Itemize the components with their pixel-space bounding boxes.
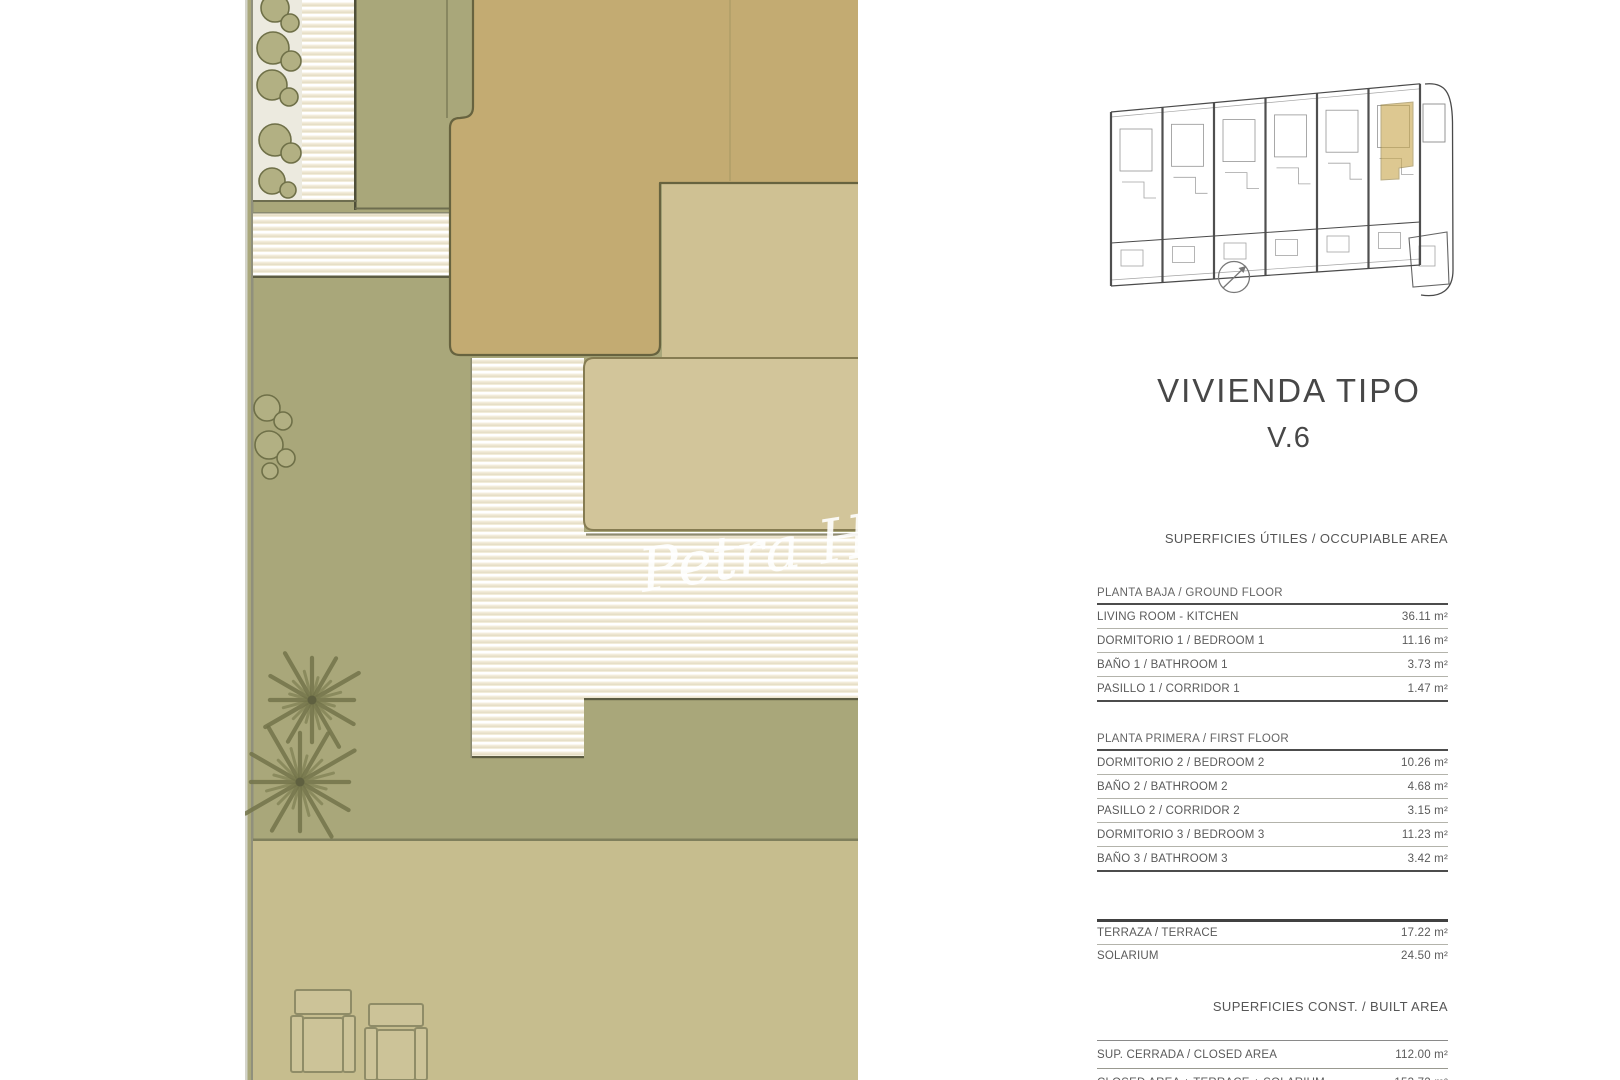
area-row-value: 1.47 m² [1408, 683, 1448, 695]
area-row-label: CLOSED AREA + TERRACE + SOLARIUM [1097, 1077, 1325, 1080]
area-row-value: 10.26 m² [1401, 757, 1448, 769]
area-row: DORMITORIO 1 / BEDROOM 111.16 m² [1097, 629, 1448, 653]
site-plan-drawing: Petra H [245, 0, 858, 1080]
key-plan-drawing [1103, 80, 1455, 308]
area-row-label: DORMITORIO 1 / BEDROOM 1 [1097, 635, 1265, 647]
plot-boundary-outer [245, 0, 248, 1080]
deck-edge-line [253, 276, 450, 279]
area-row-label: BAÑO 1 / BATHROOM 1 [1097, 659, 1228, 671]
area-row-value: 3.42 m² [1408, 853, 1448, 865]
area-row: DORMITORIO 2 / BEDROOM 210.26 m² [1097, 751, 1448, 775]
area-row-value: 4.68 m² [1408, 781, 1448, 793]
area-row-label: DORMITORIO 2 / BEDROOM 2 [1097, 757, 1265, 769]
deck-edge-line [253, 212, 450, 214]
area-row-value: 11.23 m² [1402, 829, 1448, 841]
deck-band-horizontal [253, 214, 450, 277]
area-row-label: SUP. CERRADA / CLOSED AREA [1097, 1049, 1277, 1061]
area-row: SOLARIUM24.50 m² [1097, 945, 1448, 967]
first-floor-area-table: PLANTA PRIMERA / FIRST FLOORDORMITORIO 2… [1097, 730, 1448, 872]
area-row: SUP. CERRADA / CLOSED AREA112.00 m² [1097, 1041, 1448, 1069]
area-row: PASILLO 1 / CORRIDOR 11.47 m² [1097, 677, 1448, 702]
key-plan-units [1111, 84, 1420, 286]
key-plan-right-unit [1409, 84, 1453, 296]
plan-sheet-page: Petra H VIVIENDA TIPO V.6 [0, 0, 1620, 1080]
area-row: BAÑO 2 / BATHROOM 24.68 m² [1097, 775, 1448, 799]
roof-terrace [662, 183, 858, 360]
area-row-value: 153.72 m² [1394, 1077, 1448, 1080]
section-label: PLANTA BAJA / GROUND FLOOR [1097, 584, 1448, 605]
built-area-table: SUP. CERRADA / CLOSED AREA112.00 m²CLOSE… [1097, 1040, 1448, 1080]
deck-edge-line [253, 200, 357, 202]
area-row: DORMITORIO 3 / BEDROOM 311.23 m² [1097, 823, 1448, 847]
ground-floor-area-table: PLANTA BAJA / GROUND FLOORLIVING ROOM - … [1097, 584, 1448, 702]
dwelling-type-code: V.6 [1128, 422, 1450, 455]
area-row-label: PASILLO 1 / CORRIDOR 1 [1097, 683, 1240, 695]
built-area-header: SUPERFICIES CONST. / BUILT AREA [1097, 999, 1448, 1014]
area-row-value: 11.16 m² [1402, 635, 1448, 647]
deck-band-vertical [302, 0, 355, 202]
area-row: BAÑO 3 / BATHROOM 33.42 m² [1097, 847, 1448, 872]
key-plan-highlighted-unit [1381, 102, 1413, 180]
area-row-label: TERRAZA / TERRACE [1097, 927, 1218, 939]
area-row-value: 17.22 m² [1401, 927, 1448, 939]
area-row-label: SOLARIUM [1097, 950, 1159, 962]
occupiable-area-header: SUPERFICIES ÚTILES / OCCUPIABLE AREA [1097, 531, 1448, 546]
area-row-label: PASILLO 2 / CORRIDOR 2 [1097, 805, 1240, 817]
area-row-label: LIVING ROOM - KITCHEN [1097, 611, 1239, 623]
dwelling-type-title: VIVIENDA TIPO [1128, 372, 1450, 410]
area-row-value: 24.50 m² [1401, 950, 1448, 962]
title-block: VIVIENDA TIPO V.6 [1128, 372, 1450, 455]
lawn-edge-line [355, 208, 450, 210]
key-plan [1103, 80, 1455, 308]
area-row: CLOSED AREA + TERRACE + SOLARIUM153.72 m… [1097, 1069, 1448, 1080]
section-label: PLANTA PRIMERA / FIRST FLOOR [1097, 730, 1448, 751]
area-row: TERRAZA / TERRACE17.22 m² [1097, 922, 1448, 945]
area-row-label: BAÑO 3 / BATHROOM 3 [1097, 853, 1228, 865]
terrace-area-table: TERRAZA / TERRACE17.22 m²SOLARIUM24.50 m… [1097, 919, 1448, 967]
site-plan: Petra H [245, 0, 858, 1080]
area-row-value: 36.11 m² [1402, 611, 1448, 623]
deck-edge-line [354, 0, 357, 210]
area-row-label: BAÑO 2 / BATHROOM 2 [1097, 781, 1228, 793]
area-row-value: 3.73 m² [1408, 659, 1448, 671]
area-row: LIVING ROOM - KITCHEN36.11 m² [1097, 605, 1448, 629]
area-row-value: 3.15 m² [1408, 805, 1448, 817]
area-row-label: DORMITORIO 3 / BEDROOM 3 [1097, 829, 1265, 841]
area-row: BAÑO 1 / BATHROOM 13.73 m² [1097, 653, 1448, 677]
area-row: PASILLO 2 / CORRIDOR 23.15 m² [1097, 799, 1448, 823]
area-row-value: 112.00 m² [1395, 1049, 1448, 1061]
